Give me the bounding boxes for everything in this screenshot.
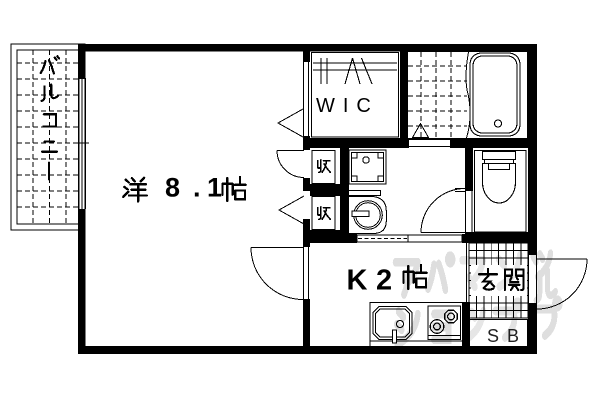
svg-text:.: .: [193, 173, 201, 203]
svg-text:2: 2: [376, 265, 392, 297]
svg-text:1: 1: [207, 173, 222, 203]
svg-text:8: 8: [165, 173, 180, 203]
svg-text:WIC: WIC: [316, 95, 379, 117]
svg-text:K: K: [347, 265, 368, 297]
